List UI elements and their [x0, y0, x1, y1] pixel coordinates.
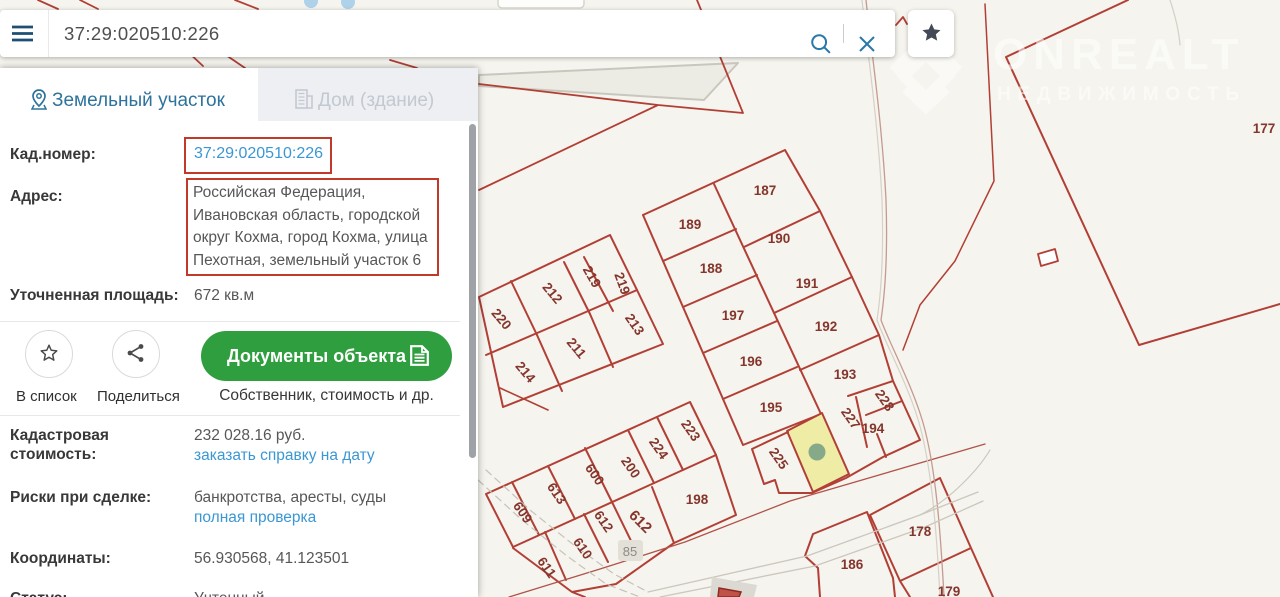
svg-text:177: 177 [1253, 121, 1276, 136]
svg-text:85: 85 [623, 544, 637, 559]
svg-text:211: 211 [564, 335, 590, 362]
svg-text:190: 190 [768, 231, 791, 246]
svg-text:189: 189 [679, 217, 702, 232]
svg-text:196: 196 [740, 354, 763, 369]
svg-text:193: 193 [834, 367, 857, 382]
svg-text:194: 194 [862, 421, 885, 436]
svg-text:191: 191 [796, 276, 819, 291]
svg-text:178: 178 [909, 524, 932, 539]
svg-text:197: 197 [722, 308, 745, 323]
svg-text:ONREALT: ONREALT [993, 30, 1244, 79]
svg-text:187: 187 [754, 183, 777, 198]
svg-text:179: 179 [938, 584, 961, 597]
svg-text:НЕДВИЖИМОСТЬ: НЕДВИЖИМОСТЬ [997, 84, 1246, 105]
svg-text:195: 195 [760, 400, 783, 415]
svg-text:212: 212 [539, 280, 565, 307]
svg-text:198: 198 [686, 492, 709, 507]
svg-text:612: 612 [591, 508, 616, 535]
svg-text:186: 186 [841, 557, 864, 572]
svg-text:192: 192 [815, 319, 838, 334]
svg-text:613: 613 [544, 480, 569, 507]
svg-text:214: 214 [512, 359, 538, 386]
svg-text:213: 213 [622, 311, 647, 338]
svg-text:200: 200 [618, 454, 643, 481]
svg-text:225: 225 [766, 445, 791, 472]
svg-text:612: 612 [625, 507, 655, 537]
svg-text:220: 220 [488, 306, 514, 333]
svg-text:188: 188 [700, 261, 723, 276]
